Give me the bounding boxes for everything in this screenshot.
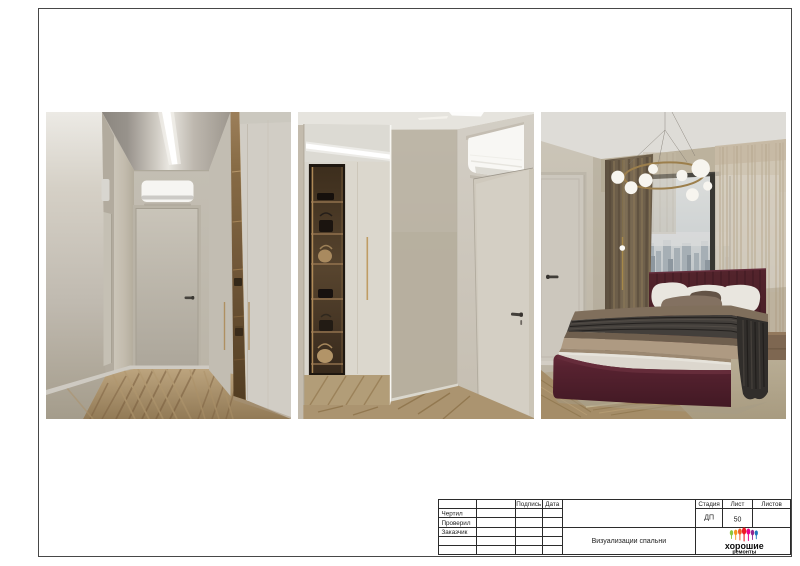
svg-text:Листов: Листов [761,501,782,508]
svg-text:Визуализации спальни: Визуализации спальни [592,538,667,545]
svg-text:Проверил: Проверил [442,520,471,527]
svg-text:Лист: Лист [731,501,745,508]
svg-text:Чертил: Чертил [442,510,463,517]
svg-text:Заказчик: Заказчик [442,529,468,536]
svg-text:Подпись: Подпись [516,501,542,508]
svg-text:ремонты: ремонты [732,549,756,555]
svg-text:Стадия: Стадия [698,501,719,508]
svg-text:50: 50 [734,517,742,524]
svg-text:ДП: ДП [704,515,714,522]
svg-text:Дата: Дата [545,501,559,508]
